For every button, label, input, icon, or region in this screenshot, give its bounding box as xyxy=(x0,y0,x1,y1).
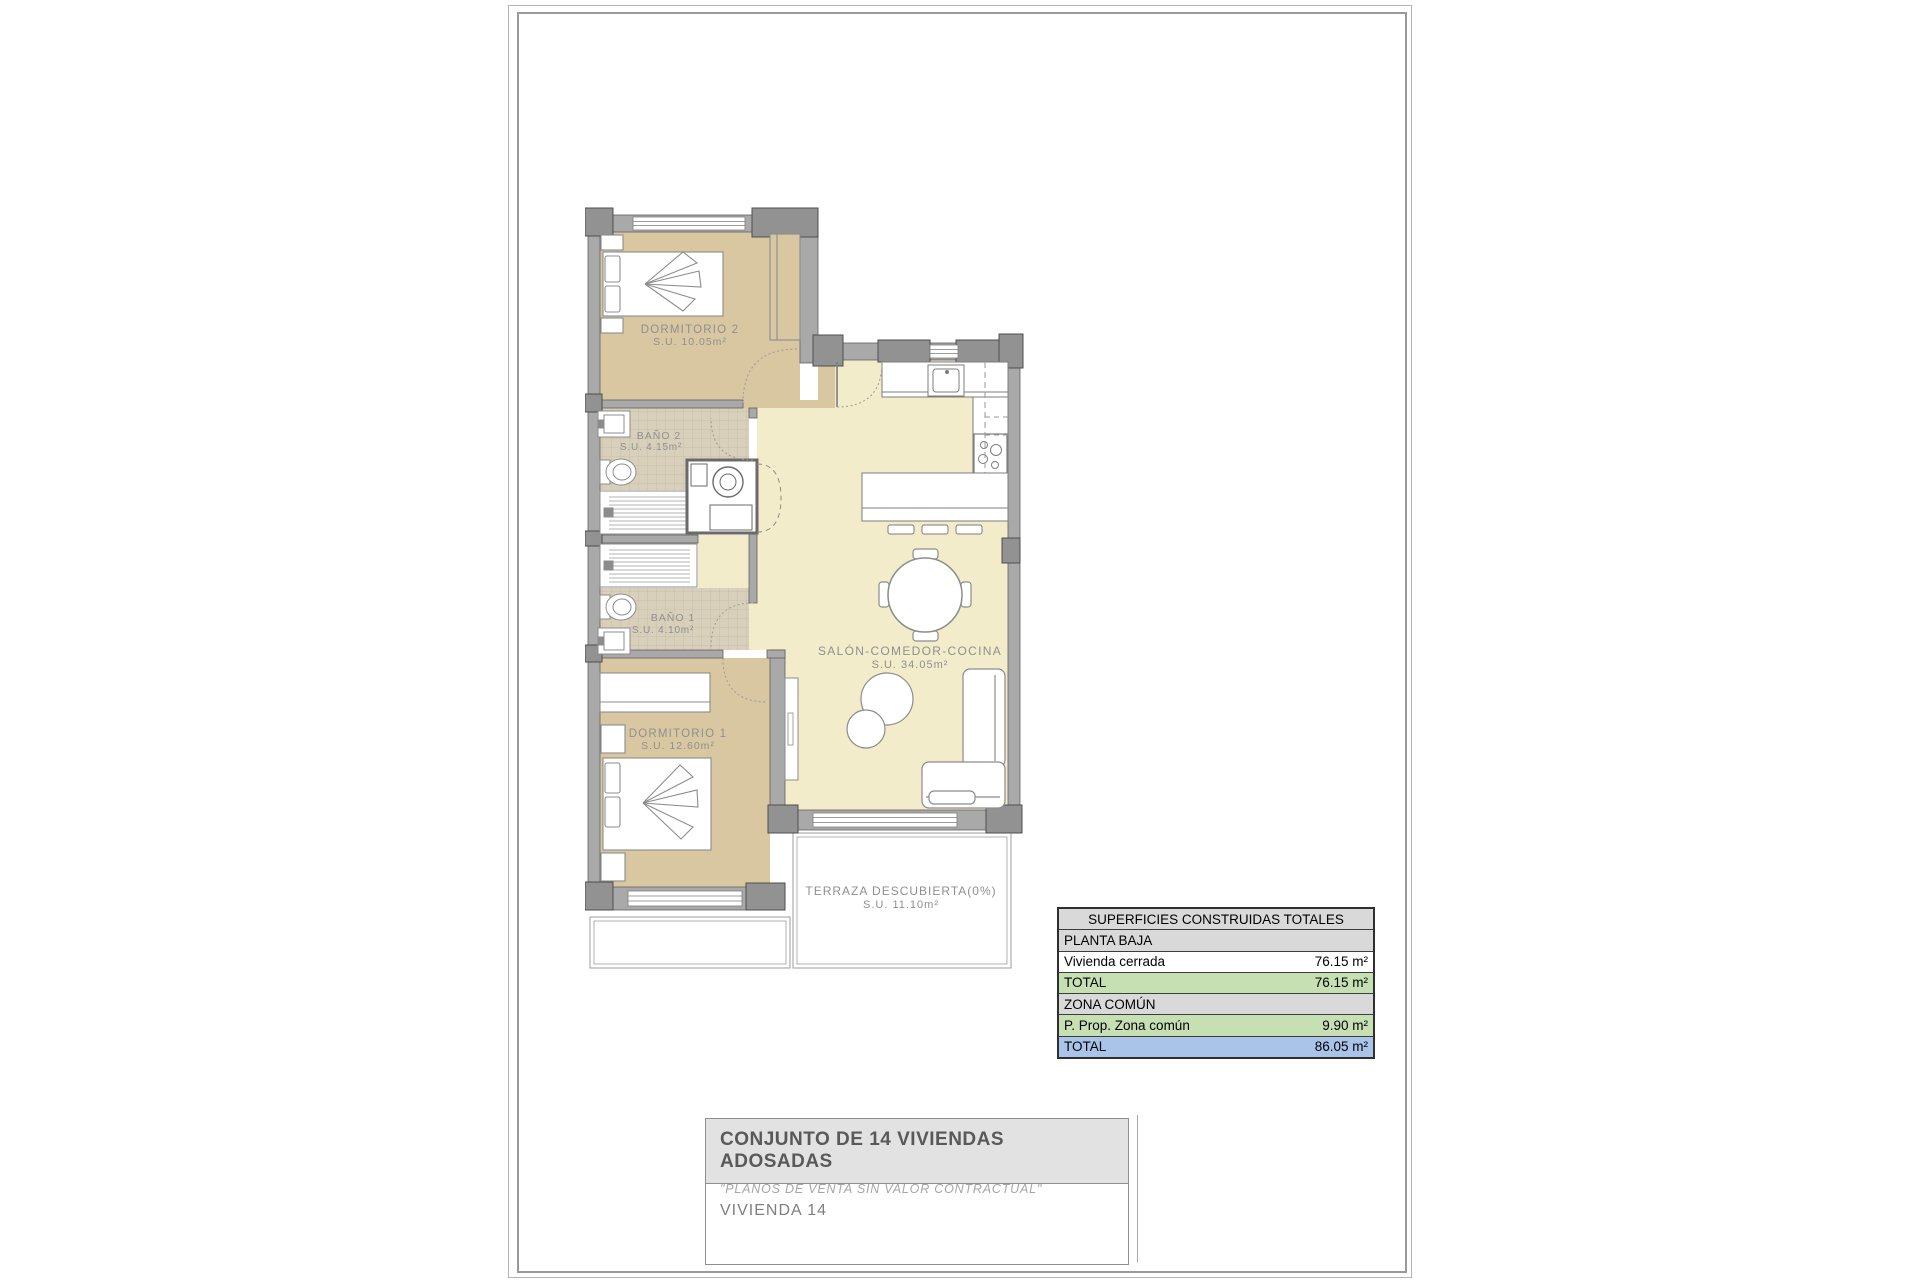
areas-table-header: SUPERFICIES CONSTRUIDAS TOTALES xyxy=(1059,909,1373,929)
toilet-icon xyxy=(600,459,636,485)
stove-icon xyxy=(974,434,1007,474)
nightstand-icon xyxy=(601,235,623,250)
kitchen-island xyxy=(862,473,1008,508)
table-row: Vivienda cerrada 76.15 m² xyxy=(1059,951,1373,972)
row-label: ZONA COMÚN xyxy=(1064,997,1368,1012)
room-label-dormitorio2: DORMITORIO 2 xyxy=(641,324,740,336)
kitchen-sink-icon xyxy=(928,365,964,396)
window-kitchen xyxy=(930,345,958,358)
nightstand-icon xyxy=(601,853,625,881)
room-area-terraza: S.U. 11.10m² xyxy=(863,899,939,911)
shower-icon xyxy=(600,544,697,587)
bed-icon xyxy=(603,252,723,316)
window-terrace-door xyxy=(813,813,957,827)
unit-name: VIVIENDA 14 xyxy=(720,1202,1114,1220)
sink-icon xyxy=(598,628,630,654)
sink-icon xyxy=(598,411,630,437)
floor-plan: DORMITORIO 2 S.U. 10.05m² BAÑO 2 S.U. 4.… xyxy=(585,205,1025,975)
room-label-terraza: TERRAZA DESCUBIERTA(0%) xyxy=(805,884,996,898)
project-title: CONJUNTO DE 14 VIVIENDAS ADOSADAS xyxy=(720,1129,1114,1173)
row-value: 9.90 m² xyxy=(1322,1018,1368,1033)
shower-icon xyxy=(600,491,697,534)
table-row: TOTAL 86.05 m² xyxy=(1059,1036,1373,1057)
row-label: Vivienda cerrada xyxy=(1064,954,1315,969)
drawing-sheet: DORMITORIO 2 S.U. 10.05m² BAÑO 2 S.U. 4.… xyxy=(0,0,1920,1280)
room-dormitorio-1 xyxy=(600,673,711,881)
tv-unit-icon xyxy=(785,678,798,780)
kitchen-island xyxy=(862,508,1008,521)
stool-icon xyxy=(888,525,914,534)
toilet-icon xyxy=(600,594,636,620)
row-label: TOTAL xyxy=(1064,1039,1315,1054)
room-area-dormitorio1: S.U. 12.60m² xyxy=(641,740,715,752)
table-row: P. Prop. Zona común 9.90 m² xyxy=(1059,1014,1373,1035)
row-label: P. Prop. Zona común xyxy=(1064,1018,1322,1033)
window-dormitorio2 xyxy=(633,217,745,230)
washing-machine-icon xyxy=(691,464,707,486)
stool-icon xyxy=(956,525,982,534)
nightstand-icon xyxy=(601,725,625,753)
stool-icon xyxy=(922,525,948,534)
areas-table-title: SUPERFICIES CONSTRUIDAS TOTALES xyxy=(1088,912,1344,927)
window-dormitorio1 xyxy=(628,891,742,906)
room-label-dormitorio1: DORMITORIO 1 xyxy=(629,728,728,740)
coffee-table-icon xyxy=(847,710,885,748)
room-label-bano2: BAÑO 2 xyxy=(637,429,682,442)
table-row: PLANTA BAJA xyxy=(1059,929,1373,950)
table-row: TOTAL 76.15 m² xyxy=(1059,972,1373,993)
title-block-header: CONJUNTO DE 14 VIVIENDAS ADOSADAS "PLANO… xyxy=(706,1119,1128,1184)
room-area-salon: S.U. 34.05m² xyxy=(872,659,949,671)
table-row: ZONA COMÚN xyxy=(1059,993,1373,1014)
bed-icon xyxy=(603,758,711,850)
room-label-salon: SALÓN-COMEDOR-COCINA xyxy=(818,643,1002,658)
title-block: CONJUNTO DE 14 VIVIENDAS ADOSADAS "PLANO… xyxy=(705,1118,1129,1265)
room-area-dormitorio2: S.U. 10.05m² xyxy=(653,336,727,348)
row-label: PLANTA BAJA xyxy=(1064,933,1368,948)
wardrobe-icon xyxy=(770,234,800,340)
row-value: 76.15 m² xyxy=(1315,975,1368,990)
row-value: 86.05 m² xyxy=(1315,1039,1368,1054)
nightstand-icon xyxy=(601,318,623,333)
wardrobe-icon xyxy=(600,673,710,712)
row-value: 76.15 m² xyxy=(1315,954,1368,969)
title-block-side-line xyxy=(1137,1115,1138,1262)
row-label: TOTAL xyxy=(1064,975,1315,990)
room-area-bano1: S.U. 4.10m² xyxy=(632,625,694,636)
room-label-bano1: BAÑO 1 xyxy=(651,611,696,624)
room-area-bano2: S.U. 4.15m² xyxy=(620,442,682,453)
areas-table: SUPERFICIES CONSTRUIDAS TOTALES PLANTA B… xyxy=(1057,907,1375,1059)
